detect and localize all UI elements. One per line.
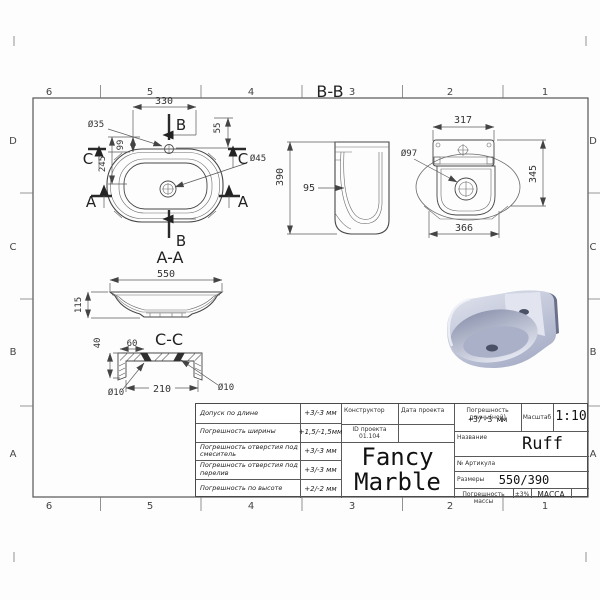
col-label: 3 xyxy=(349,87,355,98)
section-bb-view: B-B 390 95 xyxy=(275,82,389,234)
technical-drawing-canvas: 6 5 4 3 2 1 6 5 4 3 2 1 D C B A D C B A xyxy=(0,0,600,600)
drawing-sheet: 6 5 4 3 2 1 6 5 4 3 2 1 D C B A D C B A xyxy=(0,0,600,600)
scale-label: Масштаб xyxy=(521,414,553,421)
row-label: B xyxy=(10,347,17,358)
section-cc-view: C-C 40 60 210 Ø10 Ø10 xyxy=(93,330,234,398)
bottom-dim-317: 317 xyxy=(454,115,472,126)
tolerance-value: +3/-3 мм xyxy=(300,442,341,461)
cc-dia-10-right: Ø10 xyxy=(218,382,234,393)
render-drain-hole xyxy=(486,345,498,352)
col-label: 5 xyxy=(147,87,153,98)
title-block: Допуск по длине +3/-3 мм Погрешность шир… xyxy=(195,403,588,497)
tolerance-label: Погрешность отверстия под смеситель xyxy=(200,442,298,461)
col-label: 4 xyxy=(248,87,254,98)
tolerance-value: +3/-3 мм xyxy=(300,460,341,479)
brand-logo-line1: Fancy xyxy=(361,445,433,470)
tolerance-value: +3/-3 мм xyxy=(300,404,341,423)
plan-section-b-top: B xyxy=(176,116,186,134)
name-label: Название xyxy=(457,434,487,441)
tolerance-label: Погрешность ширины xyxy=(200,423,298,442)
scale-value: 1:10 xyxy=(553,409,589,424)
plan-dia-45: Ø45 xyxy=(250,153,266,164)
designer-label: Конструктор xyxy=(344,407,396,414)
plan-view: 330 Ø35 55 99 245 Ø45 B B A A C C xyxy=(83,96,266,250)
border-column-numbers-top: 6 5 4 3 2 1 xyxy=(46,87,548,98)
cc-dia-10-left: Ø10 xyxy=(108,387,124,398)
mass-tolerance-label: Погрешность массы xyxy=(454,491,513,505)
row-label: A xyxy=(590,449,597,460)
section-aa-view: A-A 550 115 xyxy=(74,248,222,318)
brand-logo: Fancy Marble xyxy=(341,442,454,498)
section-aa-title: A-A xyxy=(157,248,184,267)
mass-tolerance-value: ±3% xyxy=(513,491,531,498)
section-cc-title: C-C xyxy=(155,330,183,349)
col-label: 2 xyxy=(447,87,453,98)
tolerance-label: Погрешность по высоте xyxy=(200,479,298,498)
plan-dim-55: 55 xyxy=(213,123,223,134)
mass-label: МАССА xyxy=(531,490,571,499)
plan-section-c-left: C xyxy=(83,150,93,168)
row-label: B xyxy=(590,347,597,358)
bottom-dim-366: 366 xyxy=(455,223,473,234)
col-label: 4 xyxy=(248,501,254,512)
bb-dim-390: 390 xyxy=(275,168,286,186)
length-tolerance-value: +3/-3 мм xyxy=(456,415,519,424)
cc-dim-40: 40 xyxy=(93,338,103,349)
row-label: C xyxy=(590,242,597,253)
bb-dim-95: 95 xyxy=(303,183,315,194)
tolerance-label: Погрешность отверстия под перелив xyxy=(200,460,298,479)
row-label: D xyxy=(9,136,17,147)
col-label: 6 xyxy=(46,501,52,512)
col-label: 3 xyxy=(349,501,355,512)
col-label: 1 xyxy=(542,87,548,98)
brand-logo-line2: Marble xyxy=(354,470,441,495)
plan-dim-99: 99 xyxy=(116,140,126,151)
plan-dim-330: 330 xyxy=(155,96,173,107)
cc-dim-210: 210 xyxy=(153,384,171,395)
tolerance-value: +1,5/-1,5мм xyxy=(300,423,341,442)
size-value: 550/390 xyxy=(479,473,569,487)
tolerance-value: +2/-2 мм xyxy=(300,479,341,498)
aa-dim-115: 115 xyxy=(74,297,84,313)
plan-section-c-right: C xyxy=(238,150,248,168)
cc-dim-60: 60 xyxy=(127,339,138,349)
bottom-dim-345: 345 xyxy=(528,165,539,183)
row-label: D xyxy=(589,136,597,147)
article-label: № Артикула xyxy=(457,460,495,467)
plan-section-a-right: A xyxy=(238,193,249,211)
plan-dia-35: Ø35 xyxy=(88,119,104,130)
project-id-value: 01.104 xyxy=(341,433,398,440)
row-label: A xyxy=(10,449,17,460)
bottom-dia-97: Ø97 xyxy=(401,148,417,159)
col-label: 2 xyxy=(447,501,453,512)
col-label: 1 xyxy=(542,501,548,512)
sink-3d-render xyxy=(446,290,559,368)
date-label: Дата проекта xyxy=(401,407,453,414)
section-bb-title: B-B xyxy=(316,82,343,101)
row-label: C xyxy=(10,242,17,253)
aa-dim-550: 550 xyxy=(157,269,175,280)
col-label: 5 xyxy=(147,501,153,512)
plan-section-a-left: A xyxy=(86,193,97,211)
product-name: Ruff xyxy=(496,434,589,454)
plan-dim-245: 245 xyxy=(98,156,108,172)
bottom-view: Ø97 317 345 366 xyxy=(401,115,546,238)
col-label: 6 xyxy=(46,87,52,98)
tolerance-label: Допуск по длине xyxy=(200,404,298,423)
